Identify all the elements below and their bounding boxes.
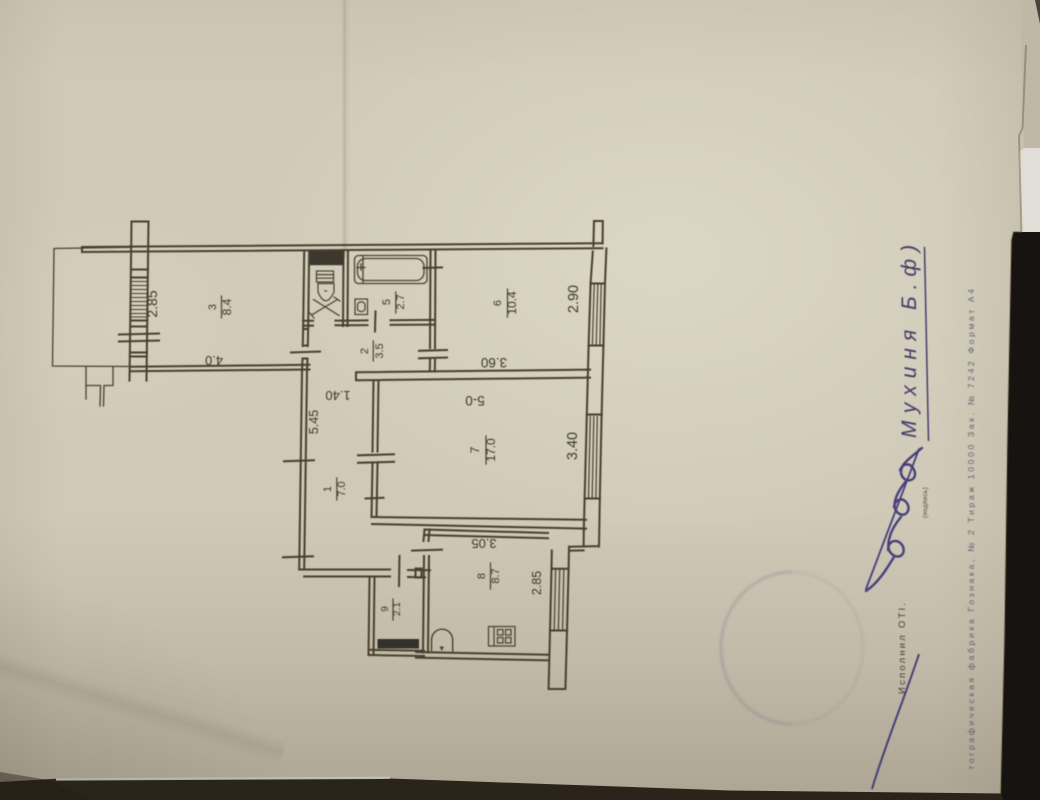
svg-text:6: 6: [492, 300, 504, 306]
svg-text:7.0: 7.0: [336, 481, 348, 496]
svg-text:8.7: 8.7: [490, 568, 502, 583]
svg-text:1.40: 1.40: [325, 388, 350, 403]
svg-text:4.0: 4.0: [205, 353, 223, 368]
svg-text:3: 3: [207, 304, 219, 310]
svg-text:2.85: 2.85: [144, 290, 160, 317]
svg-text:2.7: 2.7: [395, 294, 407, 309]
svg-text:3.60: 3.60: [481, 355, 507, 370]
svg-text:2.1: 2.1: [392, 602, 403, 616]
svg-text:5: 5: [381, 299, 393, 305]
svg-text:3.5: 3.5: [374, 343, 386, 358]
svg-text:8: 8: [476, 573, 488, 579]
svg-text:3.05: 3.05: [471, 536, 496, 551]
svg-text:2.90: 2.90: [566, 285, 582, 313]
svg-text:тографическая фабрика Гознака,: тографическая фабрика Гознака, № 2 Тираж…: [966, 286, 976, 769]
svg-text:(подпись): (подпись): [923, 487, 929, 518]
svg-text:2.85: 2.85: [530, 571, 544, 595]
svg-text:9: 9: [380, 606, 391, 612]
svg-text:5-0: 5-0: [465, 393, 485, 408]
svg-text:2: 2: [359, 348, 371, 354]
svg-text:7: 7: [468, 446, 482, 453]
svg-text:Исполнил ОТІ.: Исполнил ОТІ.: [897, 601, 908, 694]
svg-text:1: 1: [322, 486, 334, 492]
svg-text:Мухиня Б.ф): Мухиня Б.ф): [898, 238, 921, 438]
svg-text:3.40: 3.40: [565, 432, 581, 460]
svg-text:5.45: 5.45: [307, 410, 321, 434]
